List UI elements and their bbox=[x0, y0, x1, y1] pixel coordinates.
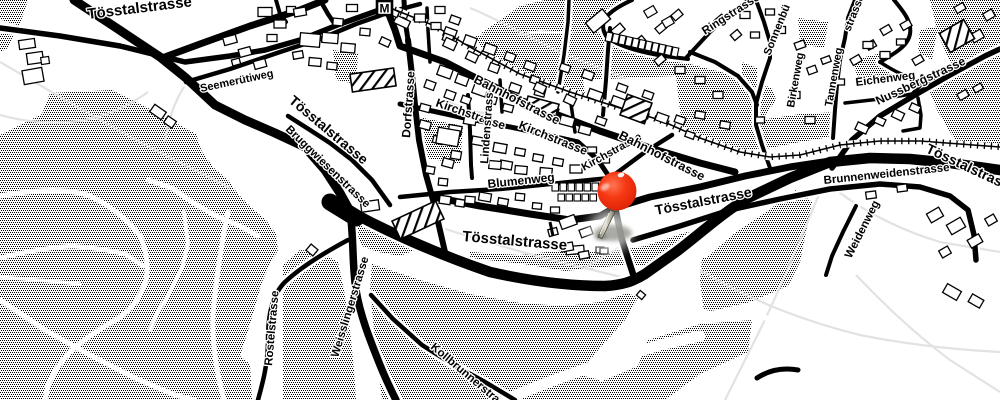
svg-text:M: M bbox=[380, 2, 390, 16]
